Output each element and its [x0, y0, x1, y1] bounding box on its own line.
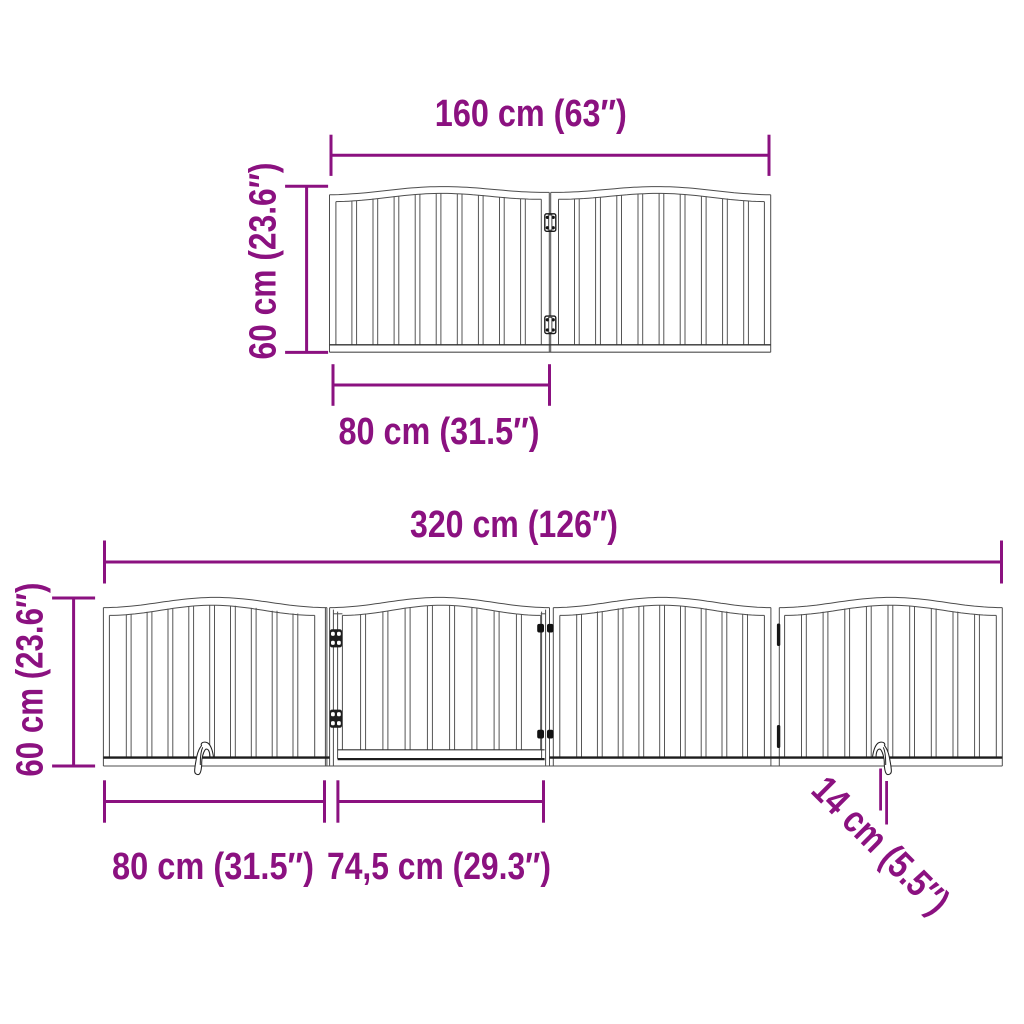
- svg-text:60 cm (23.6″): 60 cm (23.6″): [243, 163, 285, 360]
- svg-text:80 cm (31.5″): 80 cm (31.5″): [339, 411, 540, 453]
- svg-text:80 cm (31.5″): 80 cm (31.5″): [112, 846, 314, 888]
- svg-text:320 cm (126″): 320 cm (126″): [410, 504, 618, 546]
- svg-text:74,5 cm (29.3″): 74,5 cm (29.3″): [327, 846, 551, 888]
- svg-text:60 cm (23.6″): 60 cm (23.6″): [10, 583, 52, 777]
- svg-text:160 cm (63″): 160 cm (63″): [435, 93, 627, 135]
